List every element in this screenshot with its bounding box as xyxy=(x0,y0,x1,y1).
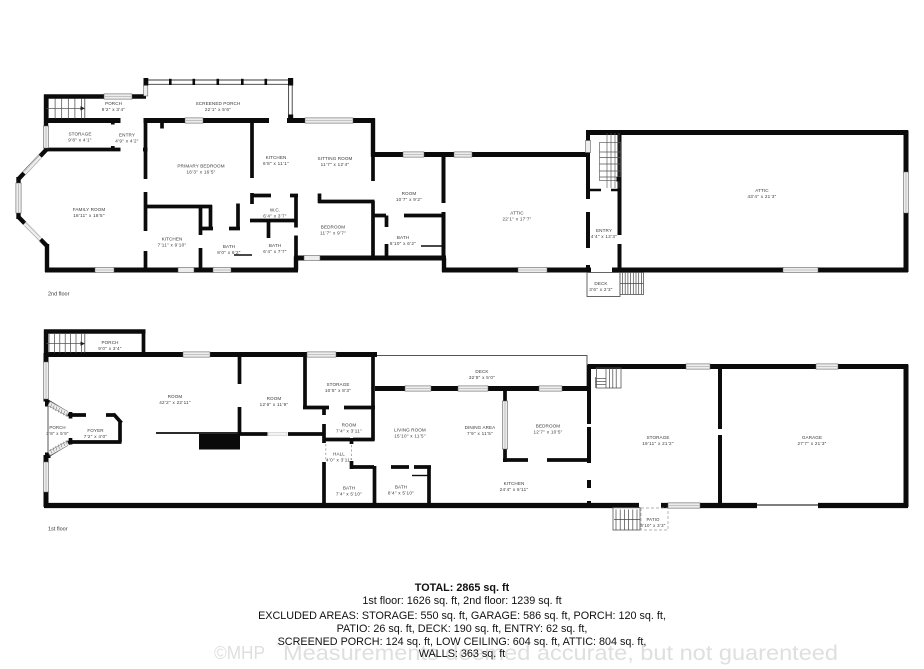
svg-text:15’10" x 11’5": 15’10" x 11’5" xyxy=(394,434,426,439)
svg-text:4’9" x 4’2": 4’9" x 4’2" xyxy=(115,139,139,144)
svg-text:©MHP: ©MHP xyxy=(214,642,265,663)
svg-text:1st floor: 1626 sq. ft, 2nd fl: 1st floor: 1626 sq. ft, 2nd floor: 1239 … xyxy=(362,595,561,607)
svg-text:8’4" x 5’10": 8’4" x 5’10" xyxy=(388,491,414,496)
svg-text:24’4" x 6’11": 24’4" x 6’11" xyxy=(500,487,529,492)
svg-text:PRIMARY BEDROOM: PRIMARY BEDROOM xyxy=(177,164,224,169)
svg-text:16’3" x 16’5": 16’3" x 16’5" xyxy=(186,170,215,175)
svg-text:10’5" x 8’3": 10’5" x 8’3" xyxy=(325,388,351,393)
svg-text:4’4" x 12’3": 4’4" x 12’3" xyxy=(591,234,617,239)
svg-text:BEDROOM: BEDROOM xyxy=(321,225,346,230)
svg-text:ROOM: ROOM xyxy=(342,423,357,428)
svg-text:KITCHEN: KITCHEN xyxy=(504,481,525,486)
svg-text:22’1" x 17’7": 22’1" x 17’7" xyxy=(502,217,531,222)
svg-text:32’8" x 5’0": 32’8" x 5’0" xyxy=(469,375,495,380)
svg-text:8’10" x 6’2": 8’10" x 6’2" xyxy=(390,241,416,246)
svg-text:DINING AREA: DINING AREA xyxy=(465,425,497,430)
svg-text:BATH: BATH xyxy=(397,235,409,240)
svg-text:7’11" x 9’10": 7’11" x 9’10" xyxy=(158,243,187,248)
svg-text:STORAGE: STORAGE xyxy=(68,132,91,137)
svg-text:W.C.: W.C. xyxy=(270,208,280,213)
svg-text:SCREENED PORCH: SCREENED PORCH xyxy=(196,101,241,106)
svg-text:STORAGE: STORAGE xyxy=(326,382,349,387)
svg-text:27’7" x 21’3": 27’7" x 21’3" xyxy=(797,441,826,446)
svg-text:7’4" x 5’10": 7’4" x 5’10" xyxy=(336,492,362,497)
svg-text:GARAGE: GARAGE xyxy=(802,435,822,440)
svg-text:3’10" x 3’3": 3’10" x 3’3" xyxy=(640,523,665,528)
svg-text:6’4" x 3’7": 6’4" x 3’7" xyxy=(263,214,287,219)
svg-text:LIVING ROOM: LIVING ROOM xyxy=(394,428,426,433)
svg-text:42’2" x 22’11": 42’2" x 22’11" xyxy=(159,400,191,405)
svg-text:ATTIC: ATTIC xyxy=(510,211,524,216)
svg-text:10’7" x 9’2": 10’7" x 9’2" xyxy=(396,197,422,202)
svg-text:6’4" x 7’7": 6’4" x 7’7" xyxy=(263,249,287,254)
svg-text:PATIO: PATIO xyxy=(646,517,660,522)
svg-text:ROOM: ROOM xyxy=(168,394,183,399)
svg-text:TOTAL: 2865 sq. ft: TOTAL: 2865 sq. ft xyxy=(415,582,510,594)
svg-text:DECK: DECK xyxy=(594,281,608,286)
svg-text:PORCH: PORCH xyxy=(101,340,118,345)
svg-text:12’6" x 11’9": 12’6" x 11’9" xyxy=(260,402,289,407)
svg-text:PORCH: PORCH xyxy=(105,101,122,106)
svg-text:6’8" x 11’1": 6’8" x 11’1" xyxy=(263,161,289,166)
svg-text:BATH: BATH xyxy=(223,244,235,249)
svg-text:7’4" x 3’11": 7’4" x 3’11" xyxy=(336,429,362,434)
svg-text:FAMILY ROOM: FAMILY ROOM xyxy=(73,207,106,212)
svg-text:8’0" x 6’2": 8’0" x 6’2" xyxy=(217,250,241,255)
svg-text:ATTIC: ATTIC xyxy=(755,188,769,193)
svg-text:4’0" x 3’11": 4’0" x 3’11" xyxy=(326,458,352,463)
svg-text:SCREENED PORCH: 124 sq. ft, LO: SCREENED PORCH: 124 sq. ft, LOW CEILING:… xyxy=(278,636,647,648)
svg-text:BEDROOM: BEDROOM xyxy=(536,424,561,429)
svg-text:11’7" x 9’7": 11’7" x 9’7" xyxy=(320,231,346,236)
svg-text:9’2" x 3’4": 9’2" x 3’4" xyxy=(102,107,126,112)
svg-text:12’7" x 10’5": 12’7" x 10’5" xyxy=(533,430,562,435)
svg-text:DECK: DECK xyxy=(475,369,489,374)
svg-text:PATIO: 26 sq. ft, DECK: 190 sq: PATIO: 26 sq. ft, DECK: 190 sq. ft, ENTR… xyxy=(337,623,588,635)
svg-text:9’8" x 4’1": 9’8" x 4’1" xyxy=(68,138,92,143)
svg-text:11’7" x 12’4": 11’7" x 12’4" xyxy=(321,162,350,167)
svg-text:BATH: BATH xyxy=(269,243,281,248)
svg-text:BATH: BATH xyxy=(395,485,407,490)
svg-text:1st floor: 1st floor xyxy=(48,527,68,533)
svg-text:HALL: HALL xyxy=(333,452,345,457)
svg-text:WALLS: 363 sq. ft: WALLS: 363 sq. ft xyxy=(419,648,506,660)
svg-text:18’11" x 18’5": 18’11" x 18’5" xyxy=(73,213,105,218)
svg-text:7’9" x 11’5": 7’9" x 11’5" xyxy=(467,431,493,436)
svg-text:KITCHEN: KITCHEN xyxy=(162,237,183,242)
svg-text:3’8" x 5’9": 3’8" x 5’9" xyxy=(46,431,69,436)
svg-text:43’4" x 21’3": 43’4" x 21’3" xyxy=(747,194,776,199)
svg-text:KITCHEN: KITCHEN xyxy=(266,155,287,160)
svg-text:19’11" x 21’2": 19’11" x 21’2" xyxy=(642,441,674,446)
svg-text:EXCLUDED AREAS: STORAGE: 550 s: EXCLUDED AREAS: STORAGE: 550 sq. ft, GAR… xyxy=(258,610,666,622)
svg-text:ENTRY: ENTRY xyxy=(119,133,135,138)
svg-text:2nd floor: 2nd floor xyxy=(48,292,70,298)
svg-text:ROOM: ROOM xyxy=(402,191,417,196)
svg-text:22’1" x 5’6": 22’1" x 5’6" xyxy=(205,107,231,112)
svg-text:FOYER: FOYER xyxy=(87,428,104,433)
svg-text:9’0" x 3’4": 9’0" x 3’4" xyxy=(98,346,122,351)
svg-text:BATH: BATH xyxy=(343,486,355,491)
svg-text:STORAGE: STORAGE xyxy=(646,435,669,440)
svg-text:PORCH: PORCH xyxy=(49,425,65,430)
svg-text:ROOM: ROOM xyxy=(267,396,282,401)
svg-text:ENTRY: ENTRY xyxy=(596,228,612,233)
svg-text:3’6" x 2’3": 3’6" x 2’3" xyxy=(589,287,613,292)
svg-text:SITTING ROOM: SITTING ROOM xyxy=(318,156,353,161)
svg-text:7’2" x 4’0": 7’2" x 4’0" xyxy=(84,434,108,439)
